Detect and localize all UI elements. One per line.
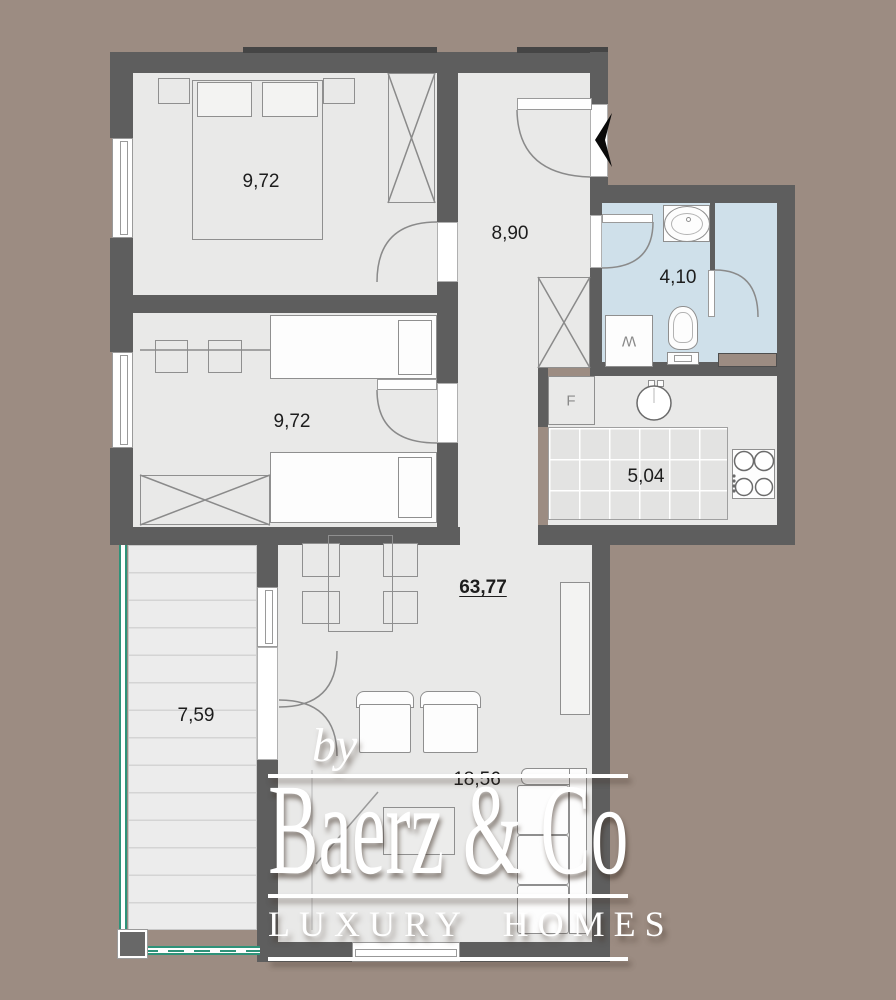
balcony-door-opening bbox=[257, 647, 278, 760]
balcony-floor bbox=[128, 545, 257, 930]
balcony-area-label: 7,59 bbox=[178, 705, 215, 727]
hallway-area-label: 8,90 bbox=[492, 223, 529, 245]
wall-bathroom-left-1 bbox=[590, 203, 602, 215]
cooktop bbox=[732, 449, 775, 499]
fridge-label: F bbox=[566, 393, 575, 410]
desk-unit-right bbox=[208, 340, 242, 373]
bedroom2-window bbox=[112, 352, 133, 448]
watermark-line-bottom bbox=[268, 957, 628, 961]
watermark-tagline: LUXURY HOMES bbox=[268, 906, 628, 942]
bedroom1-area-label: 9,72 bbox=[243, 171, 280, 193]
bedroom2-door-leaf bbox=[377, 379, 437, 390]
toilet-bowl-inner bbox=[673, 312, 693, 343]
armchair1-seat bbox=[359, 704, 411, 753]
balcony-column bbox=[118, 930, 147, 958]
entry-door-leaf bbox=[517, 98, 592, 110]
bedroom1-window bbox=[112, 138, 133, 238]
pillow-bed-bottom bbox=[398, 457, 432, 518]
wall-bathroom-left-2 bbox=[590, 268, 602, 376]
balcony-railing-left bbox=[119, 545, 127, 930]
balcony-railing-bottom bbox=[142, 946, 260, 955]
bathroom-area-label: 4,10 bbox=[660, 267, 697, 289]
toilet-cistern-inner bbox=[674, 355, 692, 362]
pillow-right bbox=[262, 82, 318, 117]
hallway-floor-lower bbox=[458, 368, 538, 527]
bathroom-door-leaf bbox=[602, 214, 653, 223]
wall-kitchen-west bbox=[538, 368, 548, 427]
wall-bedroom-divider bbox=[110, 295, 458, 313]
pillow-left bbox=[197, 82, 252, 117]
hallway-closet bbox=[538, 277, 590, 368]
desk-unit-left bbox=[155, 340, 188, 373]
entry-opening bbox=[590, 104, 608, 177]
kitchen-faucet-left bbox=[648, 380, 655, 387]
passage-floor bbox=[458, 527, 540, 545]
wall-hallway-right-upper bbox=[590, 52, 608, 104]
wall-bedrooms-hallway-3 bbox=[437, 443, 458, 527]
bedroom1-door-opening bbox=[437, 222, 458, 282]
wall-bedrooms-hallway-2 bbox=[437, 282, 458, 383]
watermark-brand: Baerz & Co bbox=[268, 765, 628, 895]
pillow-bed-top bbox=[398, 320, 432, 375]
wall-left-3 bbox=[110, 313, 133, 352]
total-area-label: 63,77 bbox=[459, 577, 507, 599]
watermark-line-middle bbox=[268, 894, 628, 898]
bedroom2-door-opening bbox=[437, 383, 458, 443]
sideboard bbox=[560, 582, 590, 715]
kitchen-area-label: 5,04 bbox=[628, 466, 665, 488]
washing-machine-label: W bbox=[622, 333, 636, 350]
bathroom-door-opening bbox=[590, 215, 602, 268]
sink-drain bbox=[686, 217, 691, 222]
floorplan-canvas: 9,72 8,90 4,10 5,04 9,72 63,77 7,59 18,5… bbox=[0, 0, 896, 1000]
wall-kitchen-bottom bbox=[538, 525, 795, 545]
shower-door-leaf bbox=[708, 270, 715, 317]
wall-living-left-upper bbox=[257, 545, 278, 587]
bathroom-partition bbox=[710, 203, 715, 270]
wall-bathroom-top bbox=[590, 185, 795, 203]
nightstand-right bbox=[323, 78, 355, 104]
dining-table bbox=[328, 535, 393, 632]
kitchen-faucet-right bbox=[657, 380, 664, 387]
wardrobe-bedroom1 bbox=[388, 73, 435, 203]
armchair2-seat bbox=[423, 704, 478, 753]
bedroom2-area-label: 9,72 bbox=[274, 411, 311, 433]
nightstand-left bbox=[158, 78, 190, 104]
wall-niche bbox=[718, 353, 777, 367]
wall-left-1 bbox=[110, 52, 133, 138]
wall-right-outer bbox=[777, 185, 795, 545]
wall-bedrooms-hallway-1 bbox=[437, 73, 458, 222]
living-west-window bbox=[257, 587, 278, 647]
wall-top bbox=[110, 52, 608, 73]
wall-top-cap-left bbox=[243, 47, 437, 53]
wardrobe-bedroom2 bbox=[140, 475, 270, 525]
